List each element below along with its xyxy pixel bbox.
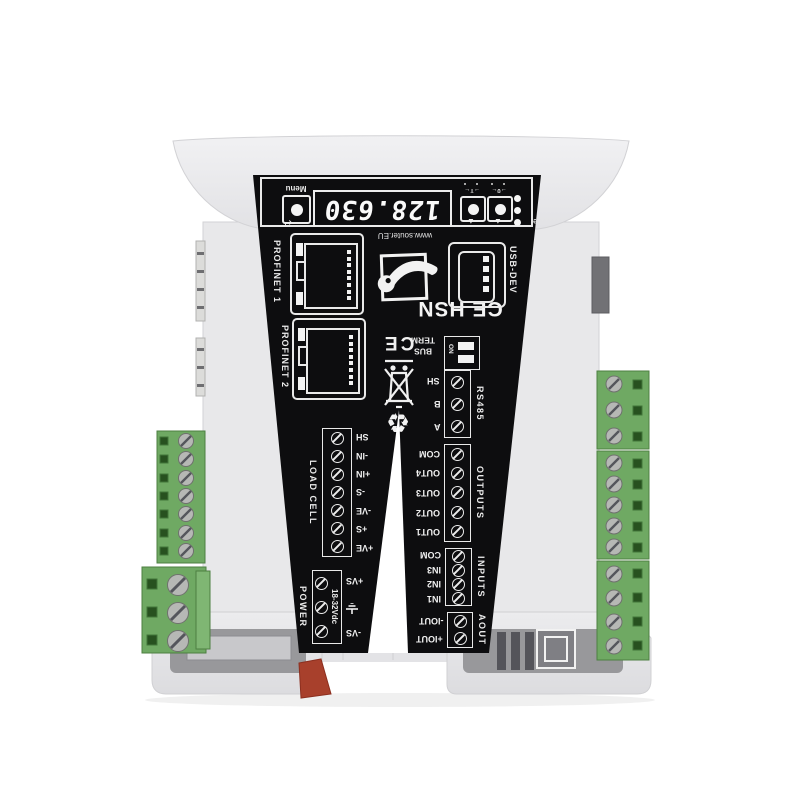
terminal-label: -IN: [356, 451, 368, 461]
enter-symbol: ↵: [283, 216, 292, 229]
red-din-clip: [299, 659, 331, 698]
supply-range-label: 18-32Vdc: [330, 589, 339, 624]
rs485-connector[interactable]: [597, 371, 649, 449]
usb-icon: [458, 251, 495, 303]
profinet1-port[interactable]: [290, 233, 364, 315]
vent-slot: [511, 632, 520, 670]
tare-key-symbol: →T←: [458, 187, 486, 193]
screw-terminal-icon: [452, 564, 465, 577]
screw-terminal-icon: [451, 420, 464, 433]
terminal-label: -S: [356, 487, 365, 497]
product-photo: Menu ↵ 128.630 →T← →0← ▲ ▲ Tare Zero Sta…: [0, 0, 800, 800]
port-led-icon: [296, 243, 303, 256]
screw-terminal-icon: [331, 450, 344, 463]
terminal-box[interactable]: [445, 548, 472, 606]
inputs-block: COM IN3 IN2 IN1 INPUTS: [413, 548, 486, 606]
rj45-latch-icon: [296, 261, 306, 281]
terminal-box[interactable]: [444, 370, 471, 438]
usb-dev-port[interactable]: [448, 242, 506, 308]
screw-terminal-icon: [315, 601, 328, 614]
terminal-label: COM: [420, 550, 441, 560]
power-block: POWER 18-32Vdc +VS: [298, 570, 372, 644]
profinet2-label: PROFINET 2: [280, 325, 290, 401]
outputs-group-label: OUTPUTS: [475, 466, 485, 520]
inputs-group-label: INPUTS: [476, 556, 486, 598]
outputs-connector[interactable]: [597, 451, 649, 559]
terminal-label: COM: [419, 449, 440, 459]
terminal-label: +IN: [356, 469, 370, 479]
terminal-box[interactable]: [444, 444, 471, 542]
rs485-block: SH B A RS485: [414, 370, 485, 438]
terminal-label: OUT2: [416, 508, 440, 518]
aout-block: -IOUT +IOUT AOUT: [409, 612, 487, 648]
arrow-key-icon: ▲: [494, 217, 502, 226]
dip-switch-lever[interactable]: [458, 342, 474, 350]
rj45-latch-icon: [298, 346, 308, 366]
terminal-label: OUT4: [416, 468, 440, 478]
screw-terminal-icon: [451, 506, 464, 519]
screw-terminal-icon: [452, 592, 465, 605]
ground-icon: [346, 598, 358, 616]
power-group-label: POWER: [298, 586, 308, 628]
screw-terminal-icon: [454, 632, 467, 645]
port-led-icon: [298, 328, 305, 341]
drop-shadow: [145, 693, 655, 707]
dip-on-label: ON: [447, 344, 454, 354]
terminal-label: +IOUT: [416, 634, 443, 644]
screw-terminal-icon: [331, 540, 344, 553]
terminal-box[interactable]: 18-32Vdc: [312, 570, 342, 644]
terminal-label: -VE: [356, 506, 371, 516]
usb-dev-label: USB-DEV: [508, 246, 518, 308]
zero-key-symbol: →0←: [485, 187, 513, 193]
screw-terminal-icon: [331, 486, 344, 499]
screw-terminal-icon: [451, 525, 464, 538]
terminal-box[interactable]: [322, 428, 352, 557]
screw-terminal-icon: [451, 376, 464, 389]
terminal-label: B: [434, 399, 441, 409]
website-text: www.souter.EU: [360, 231, 450, 240]
screw-terminal-icon: [331, 432, 344, 445]
screw-terminal-icon: [331, 522, 344, 535]
terminal-label: IN3: [427, 565, 441, 575]
screw-terminal-icon: [315, 625, 328, 638]
screw-terminal-icon: [451, 467, 464, 480]
weee-icon: [382, 350, 416, 411]
usb-b-port[interactable]: [537, 630, 575, 668]
power-connector[interactable]: [142, 567, 210, 653]
outputs-block: COM OUT4 OUT3 OUT2 OUT1 OUTPUTS: [408, 444, 485, 542]
inputs-aout-connector[interactable]: [597, 561, 649, 660]
terminal-label: +VS: [346, 576, 363, 586]
zero-led: [514, 207, 521, 214]
screw-terminal-icon: [454, 615, 467, 628]
vent-slot: [525, 632, 534, 670]
load-cell-group-label: LOAD CELL: [308, 460, 318, 525]
terminal-label: -VS: [346, 628, 361, 638]
arrow-key-icon: ▲: [467, 217, 475, 226]
screw-terminal-icon: [452, 578, 465, 591]
tare-led: [514, 195, 521, 202]
terminal-label: +VE: [356, 543, 373, 553]
rs485-group-label: RS485: [475, 386, 485, 421]
aout-group-label: AOUT: [477, 614, 487, 646]
port-led-icon: [298, 377, 305, 390]
screw-terminal-icon: [315, 577, 328, 590]
brand-logo-icon: [374, 246, 440, 306]
seven-segment-display: 128.630: [313, 190, 452, 227]
screw-terminal-icon: [451, 448, 464, 461]
stable-led: [514, 219, 521, 226]
vent-slot: [497, 632, 506, 670]
load-cell-connector[interactable]: [157, 431, 205, 563]
terminal-label: IN1: [427, 594, 441, 604]
terminal-label: -IOUT: [419, 616, 444, 626]
profinet1-label: PROFINET 1: [272, 240, 282, 316]
screw-terminal-icon: [451, 486, 464, 499]
terminal-label: SH: [356, 432, 369, 442]
terminal-label: OUT3: [416, 488, 440, 498]
screw-terminal-icon: [331, 468, 344, 481]
screw-terminal-icon: [452, 550, 465, 563]
port-led-icon: [296, 292, 303, 305]
terminal-label: SH: [427, 376, 440, 386]
menu-button-label: Menu: [276, 184, 316, 193]
rj45-jack-icon: [306, 328, 360, 394]
terminal-label: OUT1: [416, 527, 440, 537]
terminal-label: +S: [356, 524, 367, 534]
display-value: 128.630: [322, 194, 442, 224]
right-edge-connector: [592, 257, 609, 313]
load-cell-block: LOAD CELL SH -IN +IN -S -VE +S +VE: [308, 428, 386, 557]
rj45-jack-icon: [304, 243, 358, 309]
screw-terminal-icon: [331, 504, 344, 517]
profinet2-port[interactable]: [292, 318, 366, 400]
terminal-label: A: [434, 422, 441, 432]
dip-switch-lever[interactable]: [458, 355, 474, 363]
screw-terminal-icon: [451, 398, 464, 411]
terminal-label: IN2: [427, 579, 441, 589]
bus-term-dip-switch[interactable]: ON: [444, 336, 480, 370]
terminal-box[interactable]: [447, 612, 473, 648]
